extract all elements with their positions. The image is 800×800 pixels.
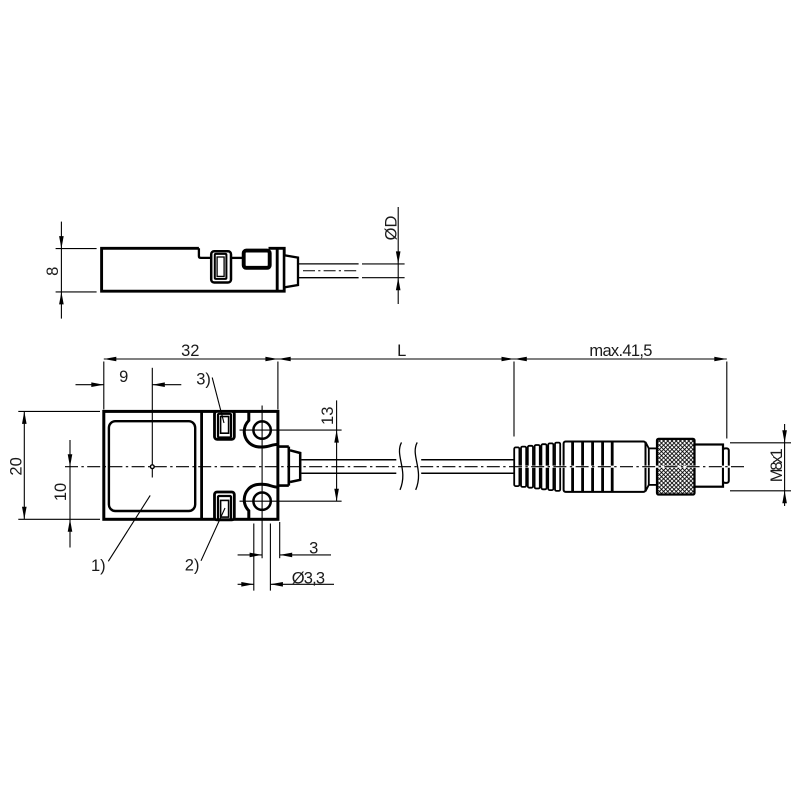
svg-text:1): 1) [91,557,106,575]
svg-text:9: 9 [119,368,128,386]
svg-text:32: 32 [181,342,199,360]
svg-text:3): 3) [196,370,211,388]
svg-text:ØD: ØD [382,216,400,241]
svg-text:8: 8 [44,267,62,276]
svg-text:20: 20 [8,457,26,475]
svg-text:2): 2) [185,556,200,574]
svg-text:M8x1: M8x1 [768,448,786,482]
svg-text:max.41,5: max.41,5 [589,342,652,360]
svg-text:10: 10 [52,483,70,501]
svg-text:13: 13 [319,407,337,425]
svg-text:Ø3,3: Ø3,3 [292,569,325,587]
svg-text:L: L [397,342,406,360]
svg-text:3: 3 [309,539,318,557]
